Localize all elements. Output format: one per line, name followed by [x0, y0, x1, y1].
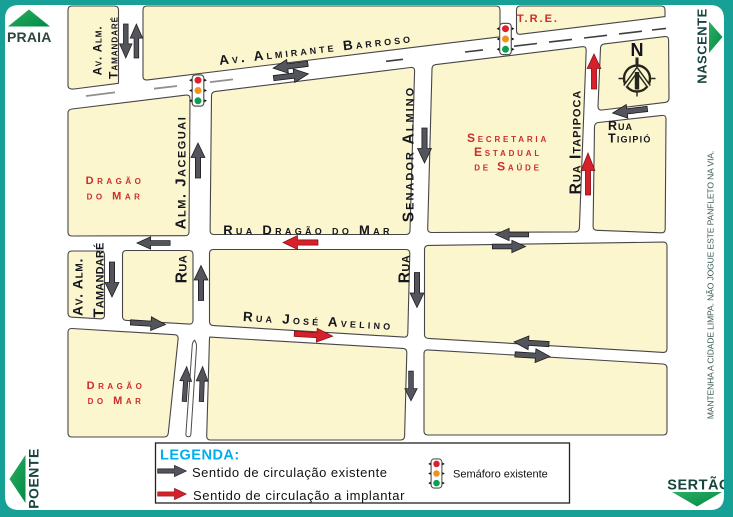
svg-text:Dragão: Dragão [86, 175, 145, 187]
svg-text:Estadual: Estadual [474, 145, 542, 159]
svg-text:Rua Itapipoca: Rua Itapipoca [567, 90, 584, 195]
svg-text:Alm. Jaceguai: Alm. Jaceguai [172, 116, 189, 230]
svg-text:LEGENDA:: LEGENDA: [160, 448, 240, 464]
svg-text:NASCENTE: NASCENTE [695, 8, 710, 84]
svg-text:T.R.E.: T.R.E. [517, 13, 559, 25]
svg-text:Sentido de circulação existent: Sentido de circulação existente [192, 465, 387, 480]
svg-text:do Mar: do Mar [87, 191, 144, 203]
svg-text:Tamandaré: Tamandaré [107, 16, 121, 79]
svg-text:Semáforo existente: Semáforo existente [453, 469, 548, 481]
svg-text:Rua Dragão do Mar: Rua Dragão do Mar [223, 223, 393, 238]
svg-text:N: N [631, 40, 644, 60]
svg-text:Dragão: Dragão [87, 380, 146, 392]
svg-text:MANTENHA A CIDADE LIMPA. NÃO J: MANTENHA A CIDADE LIMPA. NÃO JOGUE ESTE … [706, 151, 716, 419]
svg-text:SERTÃO: SERTÃO [667, 476, 730, 494]
svg-text:Rua: Rua [397, 255, 414, 284]
svg-text:Tamandaré: Tamandaré [91, 242, 108, 317]
svg-text:Av. Alm.: Av. Alm. [70, 258, 86, 316]
svg-text:Secretaria: Secretaria [467, 131, 549, 145]
svg-text:PRAIA: PRAIA [7, 29, 52, 45]
svg-text:Rua: Rua [174, 255, 191, 284]
svg-text:de Saúde: de Saúde [474, 160, 542, 174]
svg-text:Senador Almino: Senador Almino [401, 86, 418, 222]
svg-text:Sentido de circulação a implan: Sentido de circulação a implantar [193, 488, 405, 503]
svg-text:Av. Alm.: Av. Alm. [93, 26, 105, 76]
svg-text:POENTE: POENTE [26, 448, 42, 509]
svg-text:do Mar: do Mar [88, 395, 145, 407]
svg-text:Tigipió: Tigipió [608, 132, 652, 146]
